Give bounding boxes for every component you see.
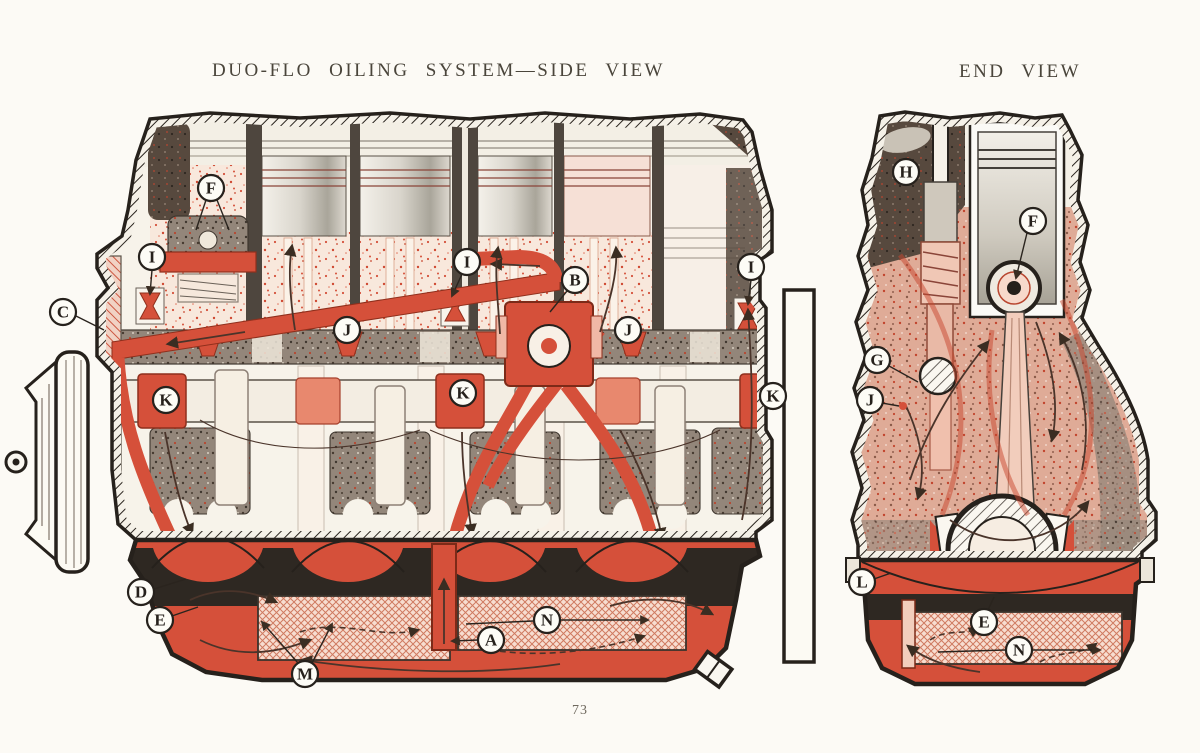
svg-text:I: I — [748, 258, 755, 277]
svg-text:L: L — [856, 573, 867, 592]
svg-text:J: J — [866, 391, 875, 410]
svg-text:N: N — [1013, 641, 1026, 660]
oil-jet-dot — [899, 402, 907, 410]
svg-text:D: D — [135, 583, 147, 602]
callout-H: H — [893, 159, 919, 185]
svg-text:E: E — [978, 613, 989, 632]
end-view-illustration — [846, 112, 1156, 684]
svg-text:G: G — [870, 351, 883, 370]
pan-bolt-right — [1140, 558, 1154, 582]
callout-J: J — [334, 317, 360, 343]
svg-text:K: K — [456, 384, 470, 403]
svg-text:H: H — [899, 163, 912, 182]
cylinder-piston — [970, 122, 1064, 317]
end-view-oil-pan — [846, 558, 1154, 684]
svg-text:I: I — [464, 253, 471, 272]
svg-text:F: F — [1028, 212, 1038, 231]
svg-text:E: E — [154, 611, 165, 630]
svg-text:C: C — [57, 303, 69, 322]
flywheel — [784, 290, 814, 662]
crankshaft-pulley — [6, 352, 88, 572]
svg-text:N: N — [541, 611, 554, 630]
side-view-illustration — [6, 113, 814, 687]
cam-circle — [920, 358, 956, 394]
svg-text:J: J — [343, 321, 352, 340]
svg-text:M: M — [297, 665, 313, 684]
callout-K: K — [450, 380, 476, 406]
duo-flo-oiling-diagram: FICIBJJIKKKDEMAN HFGJLEN — [0, 0, 1200, 753]
svg-text:J: J — [624, 321, 633, 340]
svg-text:A: A — [485, 631, 498, 650]
callout-K: K — [760, 383, 786, 409]
svg-text:F: F — [206, 179, 216, 198]
svg-text:K: K — [766, 387, 780, 406]
callout-J: J — [615, 317, 641, 343]
callout-K: K — [153, 387, 179, 413]
svg-text:B: B — [569, 271, 580, 290]
svg-text:I: I — [149, 248, 156, 267]
svg-text:K: K — [159, 391, 173, 410]
book-page: DUO-FLO OILING SYSTEM—SIDE VIEW END VIEW… — [0, 0, 1200, 753]
